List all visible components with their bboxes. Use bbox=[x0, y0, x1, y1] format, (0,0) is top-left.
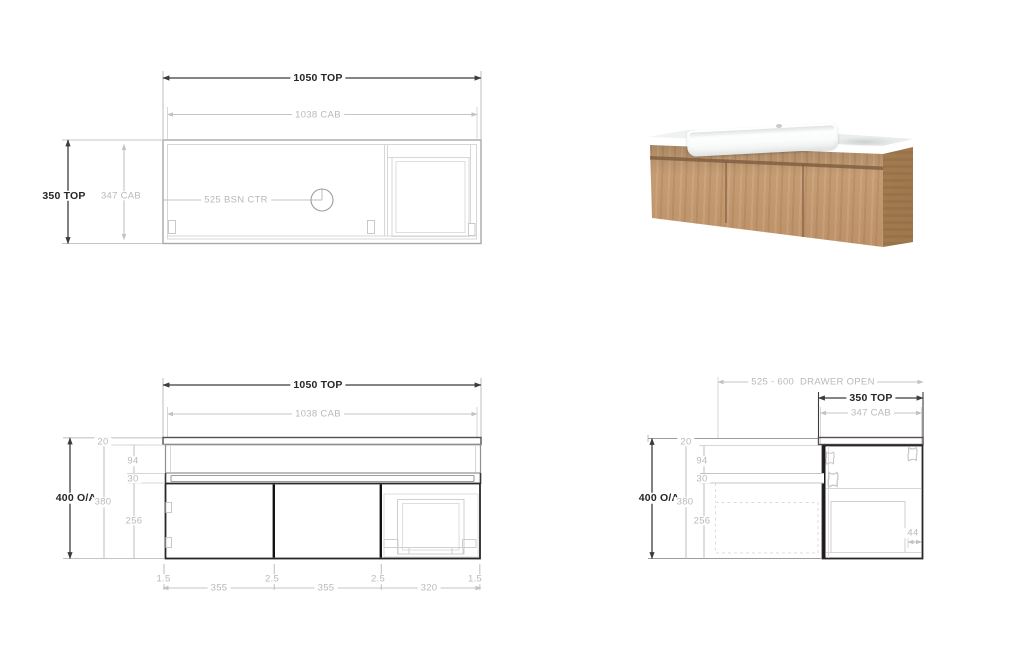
cabinet-front-shadow bbox=[635, 95, 925, 265]
front-dim-gap1: 2.5 bbox=[262, 574, 282, 584]
side-elevation-lines bbox=[648, 377, 923, 559]
side-dim-drawer-band: 94 bbox=[693, 456, 710, 466]
side-dim-top-depth: 350 TOP bbox=[846, 393, 895, 404]
hinge-mark bbox=[166, 538, 172, 548]
front-dim-door1-width: 355 bbox=[208, 583, 231, 593]
hinge-mark bbox=[469, 224, 476, 236]
front-dim-drawer-band: 94 bbox=[124, 456, 141, 466]
front-dim-edge-right: 1.5 bbox=[465, 574, 485, 584]
wall-bracket-icon bbox=[908, 448, 917, 461]
front-dim-reveal: 30 bbox=[124, 474, 141, 484]
side-dim-back-gap: 44 bbox=[904, 528, 921, 538]
side-dim-cab-depth: 347 CAB bbox=[848, 408, 894, 418]
tap-hole bbox=[776, 124, 782, 128]
hinge-mark bbox=[368, 221, 375, 234]
front-dim-top-thickness: 20 bbox=[94, 437, 111, 447]
basin-shadow bbox=[833, 137, 895, 147]
wall-bracket-icon bbox=[826, 452, 834, 464]
plan-dim-cab-width: 1038 CAB bbox=[292, 110, 344, 120]
front-dim-cab-height: 380 bbox=[92, 497, 115, 507]
drawer-gap-line bbox=[802, 164, 804, 237]
front-elevation-lines bbox=[63, 378, 481, 590]
front-dim-door2-width: 355 bbox=[315, 583, 338, 593]
front-dim-door-height: 256 bbox=[123, 516, 146, 526]
plan-dim-top-width: 1050 TOP bbox=[290, 73, 345, 84]
plan-dim-top-depth: 350 TOP bbox=[39, 190, 88, 201]
plan-view-lines bbox=[62, 71, 481, 244]
side-dim-reveal: 30 bbox=[693, 474, 710, 484]
front-dim-door3-width: 320 bbox=[418, 583, 441, 593]
product-render bbox=[635, 95, 925, 265]
front-dim-top-width: 1050 TOP bbox=[290, 380, 345, 391]
plan-dim-cab-depth: 347 CAB bbox=[98, 191, 144, 201]
plan-dim-basin-centre: 525 BSN CTR bbox=[201, 195, 271, 205]
drawer-gap-line bbox=[725, 161, 727, 223]
technical-drawing-canvas: 1050 TOP 1038 CAB 350 TOP 347 CAB 525 BS… bbox=[0, 0, 1024, 645]
front-dim-gap2: 2.5 bbox=[368, 574, 388, 584]
wall-bracket-icon bbox=[828, 473, 838, 488]
side-dim-cab-height: 380 bbox=[674, 497, 697, 507]
side-dim-drawer-open: 525 - 600 DRAWER OPEN bbox=[748, 377, 877, 387]
basin-rim bbox=[690, 125, 835, 139]
front-dim-edge-left: 1.5 bbox=[153, 574, 173, 584]
side-dim-door-height: 256 bbox=[691, 516, 714, 526]
side-dim-top-thickness: 20 bbox=[677, 437, 694, 447]
hinge-mark bbox=[166, 503, 172, 513]
front-dim-cab-width: 1038 CAB bbox=[292, 409, 344, 419]
hinge-mark bbox=[169, 221, 176, 234]
